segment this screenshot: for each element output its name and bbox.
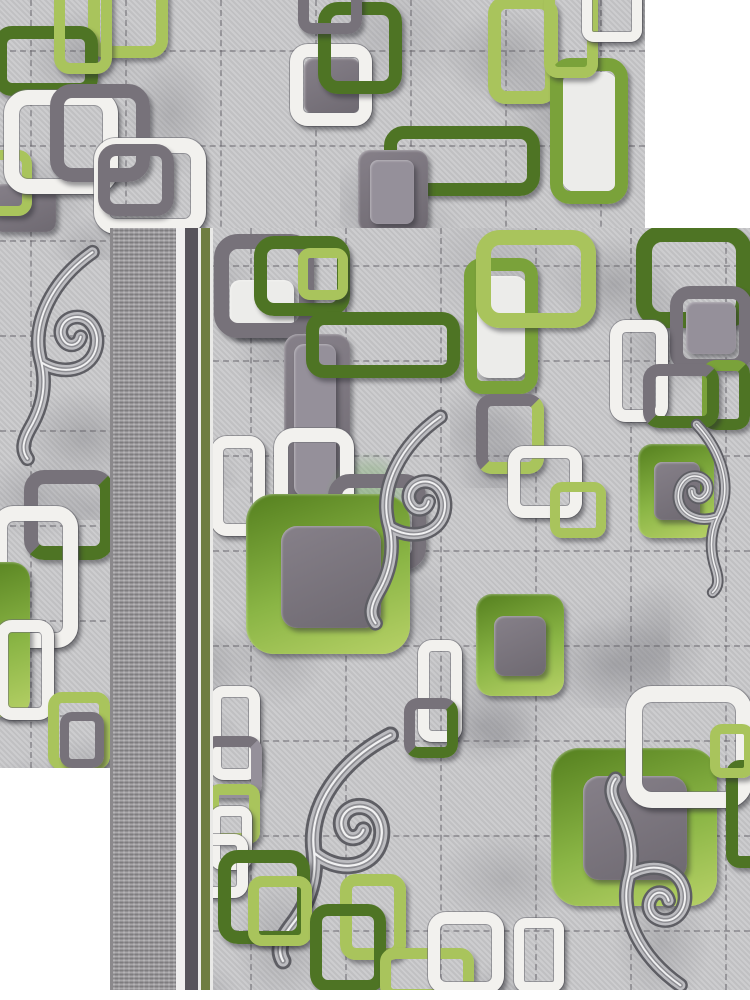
border-stripe (176, 228, 185, 990)
square-ring-motif (550, 58, 628, 204)
filled-square-motif (370, 160, 414, 224)
square-ring-motif (0, 620, 54, 720)
square-ring-motif (428, 912, 504, 990)
square-ring-motif (514, 918, 564, 990)
square-ring-motif (298, 248, 348, 300)
square-ring-motif (306, 312, 460, 378)
scroll-flourish-ornament (590, 772, 708, 990)
carpet-sample-front (110, 228, 750, 990)
square-ring-motif (310, 904, 386, 990)
square-ring-motif (670, 286, 750, 372)
square-ring-motif (60, 712, 104, 768)
square-ring-motif (54, 0, 112, 74)
scroll-flourish-ornament (2, 232, 120, 477)
filled-square-motif (494, 616, 546, 676)
border-stripe (185, 228, 198, 990)
border-stripe (210, 228, 213, 990)
square-ring-motif (550, 482, 606, 538)
border-stripe (201, 228, 210, 990)
square-ring-motif (98, 144, 174, 216)
scroll-flourish-ornament (641, 412, 750, 602)
carpet-photo-scene (0, 0, 750, 1000)
carpet-field (213, 228, 750, 990)
square-ring-motif (248, 876, 312, 946)
square-ring-motif (582, 0, 642, 42)
border-texture-band (113, 228, 176, 990)
square-ring-motif (476, 230, 596, 328)
square-ring-motif (298, 0, 362, 34)
square-ring-motif (710, 724, 750, 778)
scroll-flourish-ornament (350, 404, 468, 634)
